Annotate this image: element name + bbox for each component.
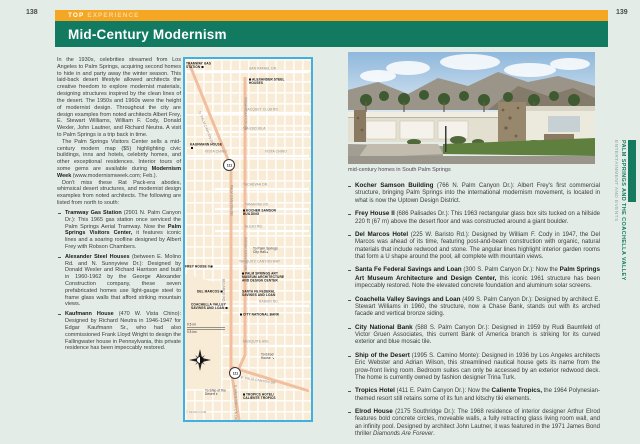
- street-label: INDIAN CANYON DR.: [243, 237, 247, 271]
- street-label: INDIAN CANYON DR.: [243, 97, 247, 131]
- page-number-left: 138: [26, 9, 38, 16]
- poi-name: Ship of the Desert: [355, 352, 410, 359]
- chapter-title-vertical: PALM SPRINGS AND THE COACHELLA VALLEY: [620, 140, 626, 281]
- bullet-dash: [58, 257, 61, 258]
- map-note: To Ship of the Desert ▾: [205, 389, 231, 396]
- chapter-tab: [628, 140, 636, 202]
- map-poi-label: TROPICS HOTEL/ CALIENTE TROPICS: [243, 393, 279, 400]
- map-note: To Elrod House ↘: [261, 353, 283, 360]
- poi-marker-icon: [240, 314, 242, 316]
- poi-name: TRAMWAY GAS STATION: [186, 62, 211, 69]
- right-text-column: Kocher Samson Building (766 N. Palm Cany…: [346, 182, 600, 444]
- map-poi-label: COACHELLA VALLEY SAVINGS AND LOAN: [191, 303, 231, 310]
- bullet-dash: [348, 235, 351, 236]
- poi-name: Santa Fe Federal Savings and Loan: [355, 266, 462, 273]
- map-poi-label: KOCHER SAMSON BUILDING: [243, 209, 283, 216]
- list-item: Alexander Steel Houses (between E. Molin…: [57, 254, 181, 309]
- bullet-dash: [348, 186, 351, 187]
- page-title: Mid-Century Modernism: [68, 27, 227, 42]
- poi-name: Kocher Samson Building: [355, 182, 433, 189]
- poi-name: Elrod House: [355, 408, 393, 415]
- left-text-column: In the 1930s, celebrities streamed from …: [57, 57, 181, 355]
- street-name: INDIAN CANYON DR.: [244, 97, 248, 131]
- poi-name: Kaufmann House: [65, 311, 114, 317]
- poi-marker-icon: [249, 79, 251, 81]
- map-poi-label: SANTA FE FEDERAL SAVINGS AND LOAN: [242, 290, 285, 297]
- bullet-dash: [348, 270, 351, 271]
- bullet-dash: [348, 412, 351, 413]
- poi-name: ALEXANDER STEEL HOUSES: [249, 78, 285, 85]
- highway-number: 111: [232, 371, 237, 375]
- poi-name: FREY HOUSE II: [185, 265, 210, 269]
- photo-midcentury-homes: [348, 52, 595, 164]
- scale-line: [187, 328, 225, 329]
- street-name: TAMARISK RD.: [245, 203, 269, 207]
- poi-name: Alexander Steel Houses: [65, 254, 130, 260]
- photo-caption: mid-century homes in South Palm Springs: [348, 167, 451, 173]
- bullet-dash: [348, 328, 351, 329]
- street-label: RAMON RD.: [259, 300, 279, 304]
- italic-title: Diamonds Are Forever: [373, 431, 433, 437]
- map-poi-label: CITY NATIONAL BANK: [240, 313, 279, 317]
- poi-marker-icon: [201, 66, 203, 68]
- direction-arrow-icon: ▸: [267, 251, 269, 255]
- street-label: TACHEVAH DR.: [243, 183, 268, 187]
- paragraph: The Palm Springs Visitors Center sells a…: [57, 139, 181, 180]
- street-name: INDIAN CANYON DR.: [244, 237, 248, 271]
- poi-name: City National Bank: [355, 324, 413, 331]
- list-item: Del Marcos Hotel (225 W. Baristo Rd.): D…: [346, 231, 600, 262]
- street-label: MESQUITE AVE.: [243, 340, 270, 344]
- poi-marker-icon: [211, 266, 213, 268]
- list-item: City National Bank (588 S. Palm Canyon D…: [346, 324, 600, 347]
- highway-number: 111: [226, 163, 231, 167]
- poi-desc: (300 S. Palm Canyon Dr.): Now the: [462, 267, 560, 273]
- street-name: S. PALM CANYON DR.: [234, 385, 238, 421]
- list-item: Coachella Valley Savings and Loan (499 S…: [346, 296, 600, 319]
- map-poi-label: TRAMWAY GAS STATION: [186, 62, 222, 69]
- poi-name: Coachella Valley Savings and Loan: [355, 296, 460, 303]
- poi-name: Frey House II: [355, 210, 395, 217]
- poi-desc: (470 W. Vista Chino): Designed by Richar…: [65, 311, 181, 351]
- street-label: S. PALM CANYON DR.: [233, 385, 237, 421]
- street-name: RACQUET CLUB RD.: [245, 108, 279, 112]
- kicker-strong: TOP: [68, 12, 84, 19]
- kicker-rest: EXPERIENCE: [87, 12, 139, 19]
- street-label: VISTA CHINO: [265, 150, 287, 154]
- compass-rose-icon: [189, 349, 211, 371]
- map-scale-bar: 0.5 mi 0.5 km: [187, 323, 225, 334]
- highway-shield: 111: [229, 367, 241, 379]
- list-item: Kaufmann House (470 W. Vista Chino): Des…: [57, 311, 181, 352]
- list-item: Tramway Gas Station (2901 N. Palm Canyon…: [57, 210, 181, 251]
- bullet-dash: [348, 300, 351, 301]
- map-poi-label: PALM SPRINGS ART MUSEUM ARCHITECTURE AND…: [242, 272, 285, 283]
- map-poi-label: ALEXANDER STEEL HOUSES: [249, 78, 291, 85]
- street-name: SAN RAFAEL DR.: [249, 67, 277, 71]
- bullet-dash: [348, 214, 351, 215]
- highway-shield: 111: [223, 159, 235, 171]
- photo-illustration: [348, 52, 595, 164]
- palm-springs-map: SAN RAFAEL DR. RACQUET CLUB RD. VIA ESCU…: [183, 57, 313, 422]
- list-item: Tropics Hotel (411 E. Palm Canyon Dr.): …: [346, 387, 600, 403]
- title-bar: Mid-Century Modernism: [55, 21, 608, 47]
- street-label: RACQUET CLUB RD.: [245, 108, 279, 112]
- map-credit: © MOON.COM: [186, 411, 206, 414]
- street-name: VISTA CHINO: [205, 150, 227, 154]
- street-name: VISTA CHINO: [265, 150, 287, 154]
- direction-arrow-icon: ▾: [216, 393, 218, 397]
- poi-marker-icon: [243, 394, 245, 396]
- list-item: Ship of the Desert (1995 S. Camino Monte…: [346, 352, 600, 383]
- paragraph: In the 1930s, celebrities streamed from …: [57, 57, 181, 139]
- poi-list-right: Kocher Samson Building (766 N. Palm Cany…: [346, 182, 600, 439]
- list-item: Frey House II (686 Palisades Dr.): This …: [346, 210, 600, 226]
- map-poi-label: FREY HOUSE II: [185, 265, 213, 269]
- street-label: SAN RAFAEL DR.: [249, 67, 277, 71]
- paragraph: Don't miss these Rat Pack-era abodes, wh…: [57, 180, 181, 207]
- bold-term: Caliente Tropics,: [492, 387, 542, 394]
- poi-marker-icon: [242, 273, 244, 275]
- bullet-dash: [58, 213, 61, 214]
- section-title-vertical: ENTERTAINMENT AND EVENTS: [613, 140, 618, 222]
- scale-miles: 0.5 mi: [187, 323, 196, 327]
- street-label: TAMARISK RD.: [245, 203, 269, 207]
- poi-name: Tropics Hotel: [355, 387, 395, 394]
- street-name: MESQUITE AVE.: [243, 340, 270, 344]
- poi-name: TROPICS HOTEL/ CALIENTE TROPICS: [243, 393, 276, 400]
- poi-marker-icon: [225, 307, 227, 309]
- street-label: VISTA CHINO: [205, 150, 227, 154]
- kicker-bar: TOP EXPERIENCE: [55, 10, 608, 21]
- street-label: ALEJO RD.: [245, 225, 263, 229]
- poi-name: KOCHER SAMSON BUILDING: [243, 209, 276, 216]
- street-name: RAMON RD.: [259, 300, 279, 304]
- poi-name: Tramway Gas Station: [65, 210, 122, 216]
- scale-km: 0.5 km: [187, 331, 197, 335]
- poi-name: DEL MARCOS: [197, 290, 219, 294]
- street-label: PALM CANYON DR.: [229, 185, 233, 217]
- page-number-right: 139: [616, 9, 628, 16]
- bullet-dash: [58, 314, 61, 315]
- poi-list-left: Tramway Gas Station (2901 N. Palm Canyon…: [57, 210, 181, 352]
- poi-marker-icon: [243, 210, 245, 212]
- bullet-dash: [348, 391, 351, 392]
- list-item: Kocher Samson Building (766 N. Palm Cany…: [346, 182, 600, 205]
- street-name: PALM CANYON DR.: [230, 185, 234, 217]
- poi-marker-icon: [220, 291, 222, 293]
- map-note: To Palm Springs City Hall ▸: [253, 247, 283, 254]
- poi-name: SANTA FE FEDERAL SAVINGS AND LOAN: [242, 290, 275, 297]
- poi-desc: .: [433, 431, 435, 437]
- poi-name: Del Marcos Hotel: [355, 231, 408, 238]
- poi-name: CITY NATIONAL BANK: [243, 313, 279, 317]
- poi-name: COACHELLA VALLEY SAVINGS AND LOAN: [191, 303, 226, 310]
- direction-arrow-icon: ↘: [272, 357, 275, 361]
- poi-name: KAUFMANN HOUSE: [190, 143, 222, 147]
- map-poi-label: DEL MARCOS: [197, 290, 222, 294]
- poi-desc: (between E. Molino Rd. and N. Sunnyview …: [65, 254, 181, 308]
- note-text: To Palm Springs City Hall: [253, 247, 278, 254]
- paragraph-text: (www.modernismweek.com; Feb.).: [71, 173, 157, 179]
- poi-marker-icon: [191, 147, 193, 149]
- list-item: Santa Fe Federal Savings and Loan (300 S…: [346, 266, 600, 290]
- street-name: ALEJO RD.: [245, 225, 263, 229]
- street-name: TACHEVAH DR.: [243, 183, 268, 187]
- poi-desc: (411 E. Palm Canyon Dr.): Now the: [395, 388, 492, 394]
- list-item: Elrod House (2175 Southridge Dr.): The 1…: [346, 408, 600, 439]
- poi-name: PALM SPRINGS ART MUSEUM ARCHITECTURE AND…: [242, 272, 284, 283]
- bullet-dash: [348, 356, 351, 357]
- map-poi-label: KAUFMANN HOUSE: [190, 143, 225, 150]
- scale-line: [187, 329, 225, 330]
